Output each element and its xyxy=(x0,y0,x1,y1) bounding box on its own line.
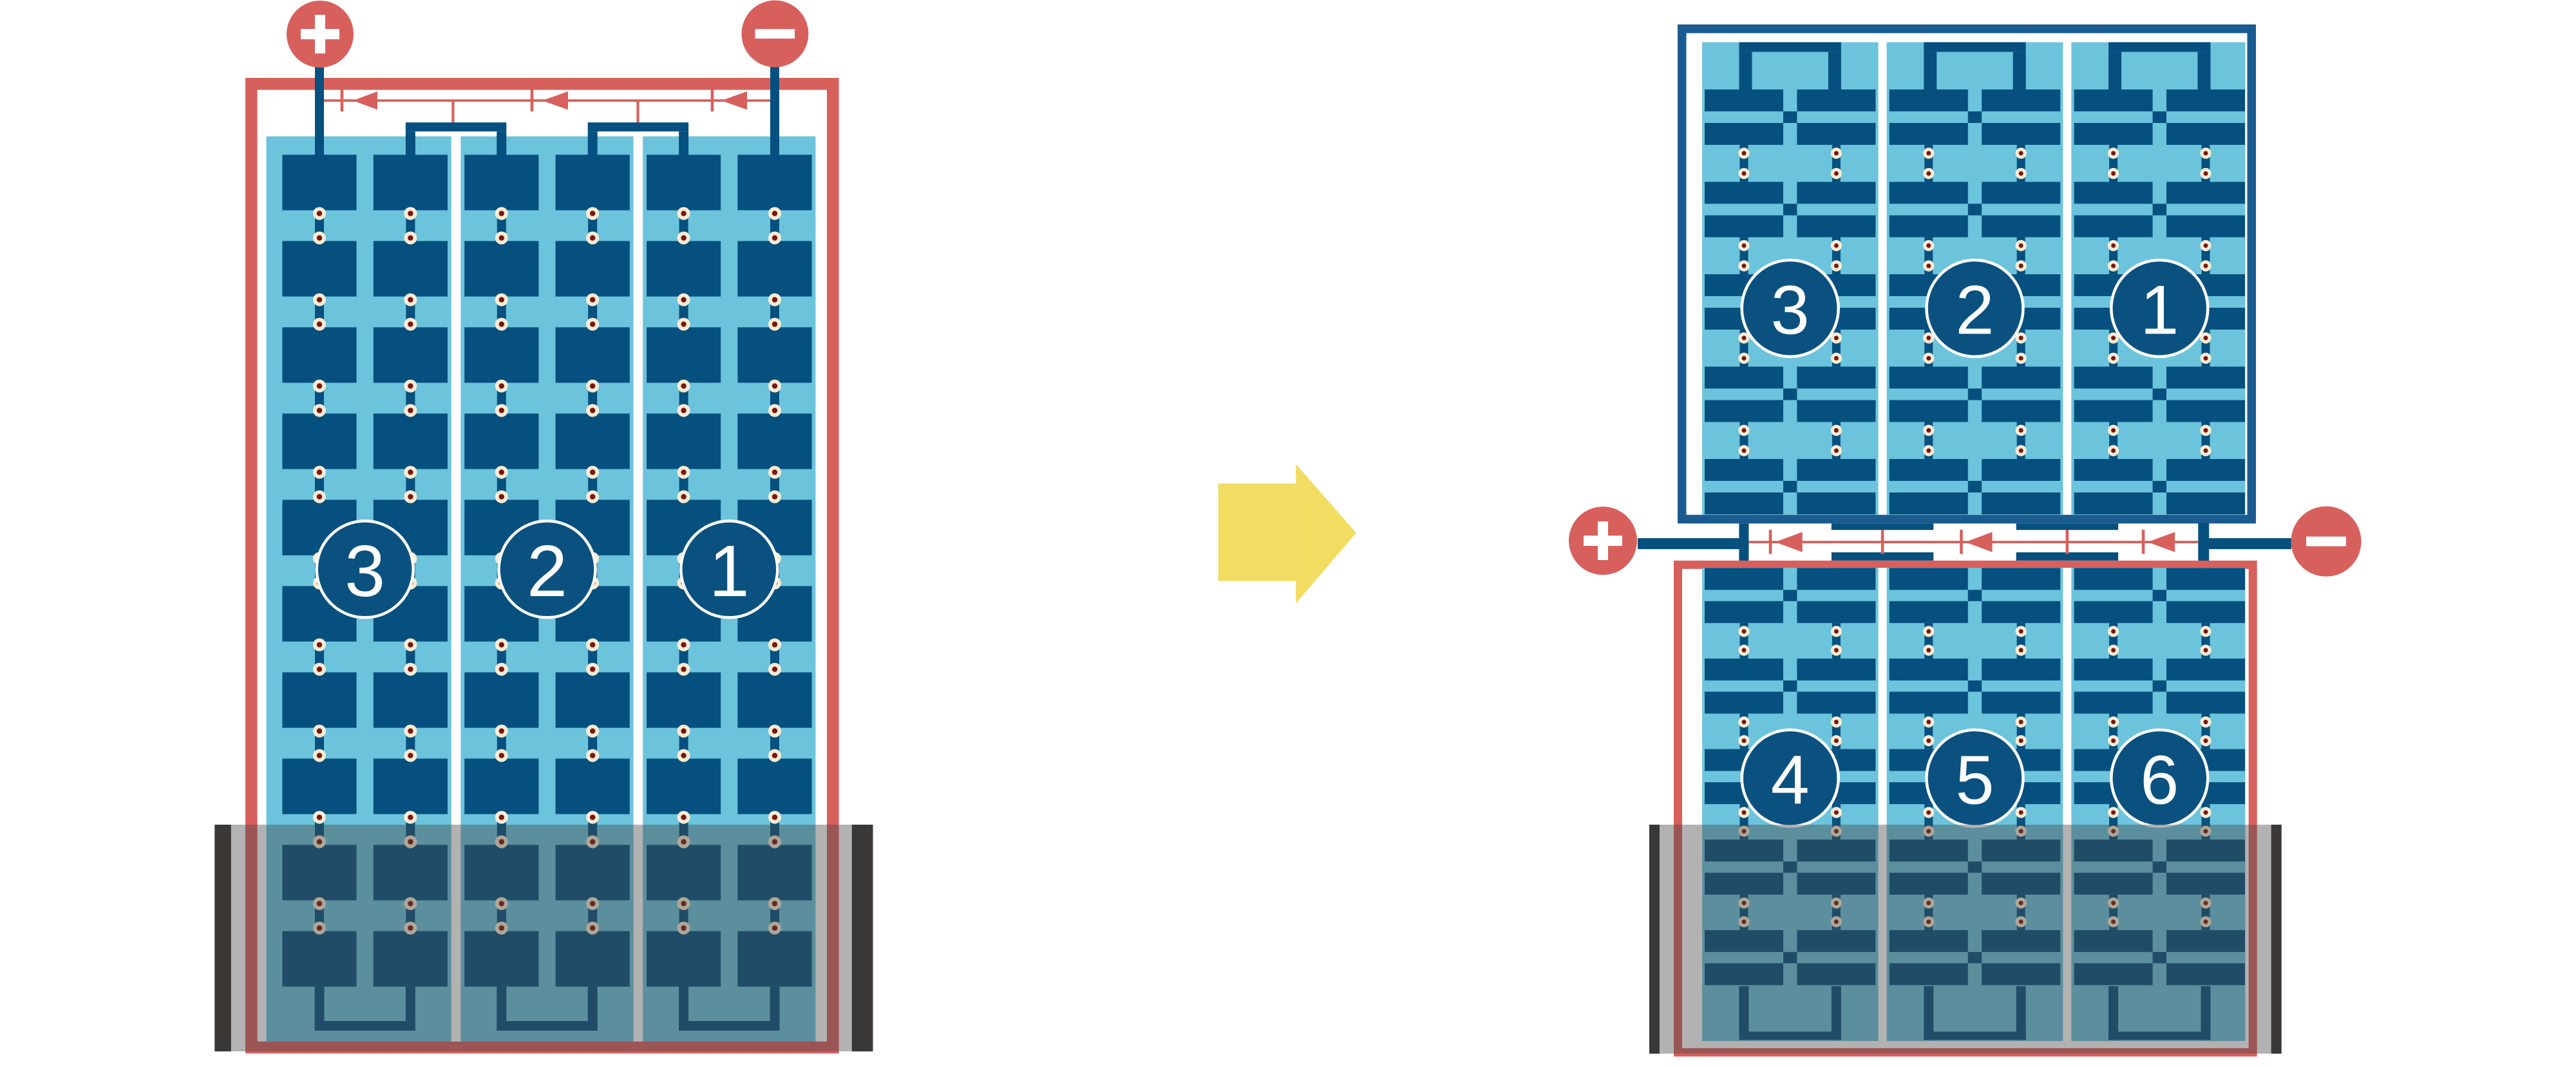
svg-text:6: 6 xyxy=(2140,740,2179,818)
svg-text:2: 2 xyxy=(1955,271,1994,349)
svg-text:3: 3 xyxy=(345,530,385,612)
svg-text:1: 1 xyxy=(2140,271,2179,349)
svg-text:2: 2 xyxy=(527,530,567,612)
svg-text:4: 4 xyxy=(1771,740,1810,818)
svg-text:5: 5 xyxy=(1955,740,1994,818)
svg-text:1: 1 xyxy=(709,530,750,612)
svg-text:3: 3 xyxy=(1771,271,1810,349)
